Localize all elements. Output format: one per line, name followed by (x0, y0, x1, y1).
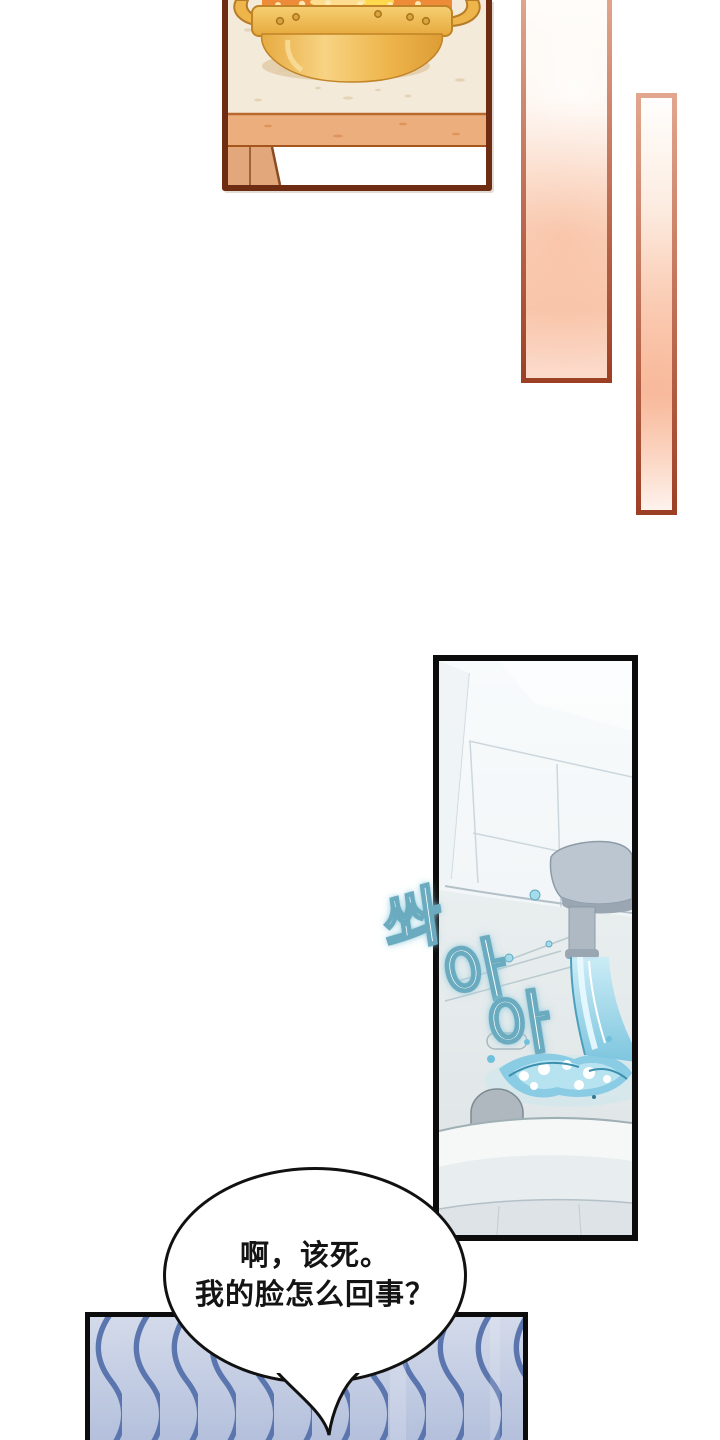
speech-line-2: 我的脸怎么回事？ (195, 1276, 435, 1315)
accent-strip-2 (636, 93, 677, 515)
kitchen-pot-panel (222, 0, 492, 191)
table-legs (228, 147, 280, 185)
speech-line-1: 啊，该死。 (195, 1237, 435, 1276)
accent-strip-1-fill (526, 0, 607, 378)
accent-strip-2-fill (641, 98, 672, 510)
sink-front (439, 1118, 632, 1235)
table-edge (228, 114, 486, 147)
accent-strip-1 (521, 0, 612, 383)
bathroom-sink-panel (433, 655, 638, 1241)
webtoon-page: 쏴 아 아 啊，该死。 我的脸怎么回事？ (0, 0, 720, 1440)
speech-text: 啊，该死。 我的脸怎么回事？ (195, 1237, 435, 1315)
bathroom-panel-art (439, 661, 632, 1235)
kitchen-panel-art (228, 0, 486, 185)
speech-bubble: 啊，该死。 我的脸怎么回事？ (163, 1167, 467, 1384)
light-streak (490, 1317, 500, 1440)
speech-bubble-tail (276, 1373, 360, 1437)
